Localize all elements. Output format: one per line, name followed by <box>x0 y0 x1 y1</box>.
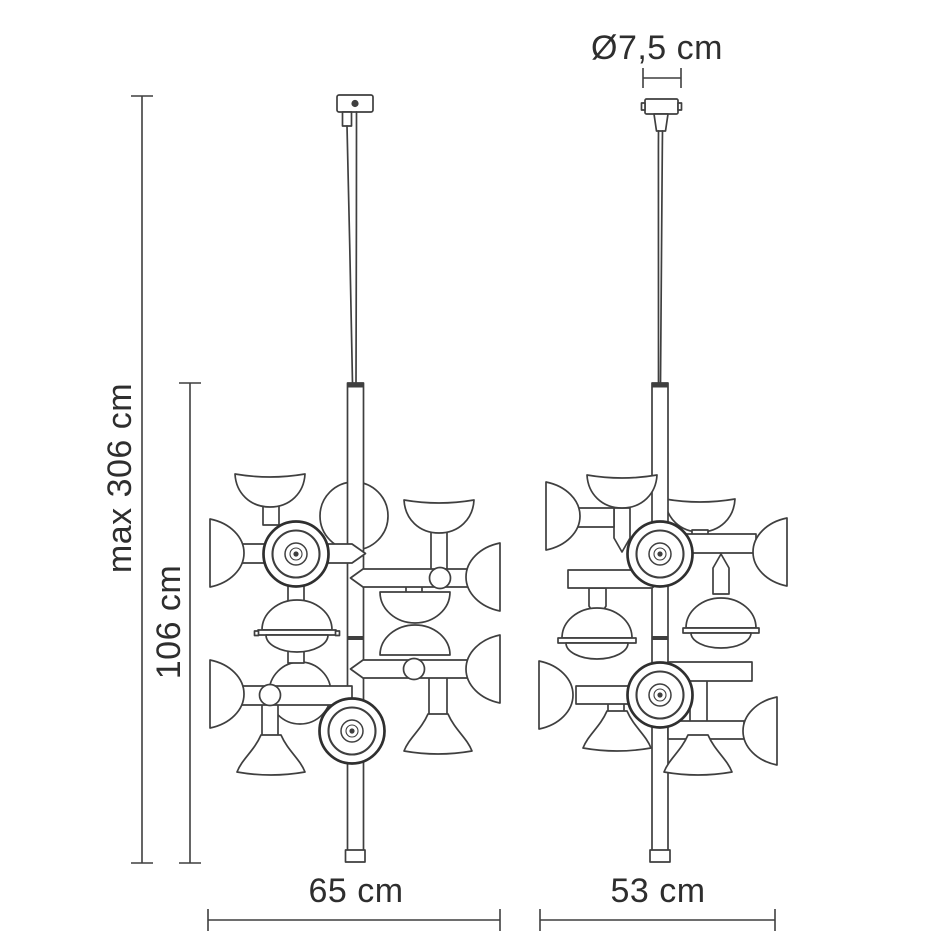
dimension-label-side-width: 53 cm <box>610 874 705 908</box>
dimension-line-front-width <box>208 909 500 931</box>
dimension-drawing-svg <box>0 0 950 950</box>
dimension-line-canopy-diameter <box>643 68 681 88</box>
stem <box>348 383 364 855</box>
double-bowl-shade <box>380 592 450 655</box>
ceiling-canopy <box>337 95 373 126</box>
cup-shade-right <box>743 697 777 765</box>
hub-disc <box>320 699 385 764</box>
hub-disc <box>628 522 693 587</box>
bell-shade-down <box>664 735 732 775</box>
cup-shade-left <box>210 519 244 587</box>
cup-shade-right <box>466 543 500 611</box>
bell-shade-down <box>237 735 305 775</box>
suspension-cables <box>347 112 357 383</box>
dimension-label-front-width: 65 cm <box>308 874 403 908</box>
double-dome-shade <box>558 608 636 659</box>
hub-disc <box>264 522 329 587</box>
cup-shade-up <box>235 474 305 507</box>
dimension-label-canopy-diameter: Ø7,5 cm <box>591 31 723 65</box>
hub-disc <box>628 663 693 728</box>
cup-shade-left <box>210 660 244 728</box>
dimension-line-side-width <box>540 909 775 931</box>
side-view-drawing <box>539 99 787 862</box>
cup-shade-left <box>539 661 573 729</box>
ceiling-canopy <box>642 99 682 131</box>
dimension-label-fixture-height: 106 cm <box>152 565 186 680</box>
product-dimension-diagram: max 306 cm 106 cm 65 cm 53 cm Ø7,5 cm <box>0 0 950 950</box>
dimension-lines <box>131 68 775 931</box>
front-view-drawing <box>210 95 500 862</box>
dimension-label-max-height: max 306 cm <box>103 383 137 573</box>
cup-shade-left <box>546 482 580 550</box>
bell-shade-down <box>404 714 472 754</box>
cup-shade-right <box>466 635 500 703</box>
cup-shade-up <box>587 475 657 508</box>
suspension-cables <box>658 131 662 383</box>
double-dome-shade <box>683 598 759 648</box>
double-dome-shade <box>255 600 340 652</box>
stem <box>652 383 668 855</box>
stem-end-cap <box>650 850 670 862</box>
stem-end-cap <box>346 850 366 862</box>
cup-shade-right <box>753 518 787 586</box>
cup-shade-up <box>404 500 474 533</box>
